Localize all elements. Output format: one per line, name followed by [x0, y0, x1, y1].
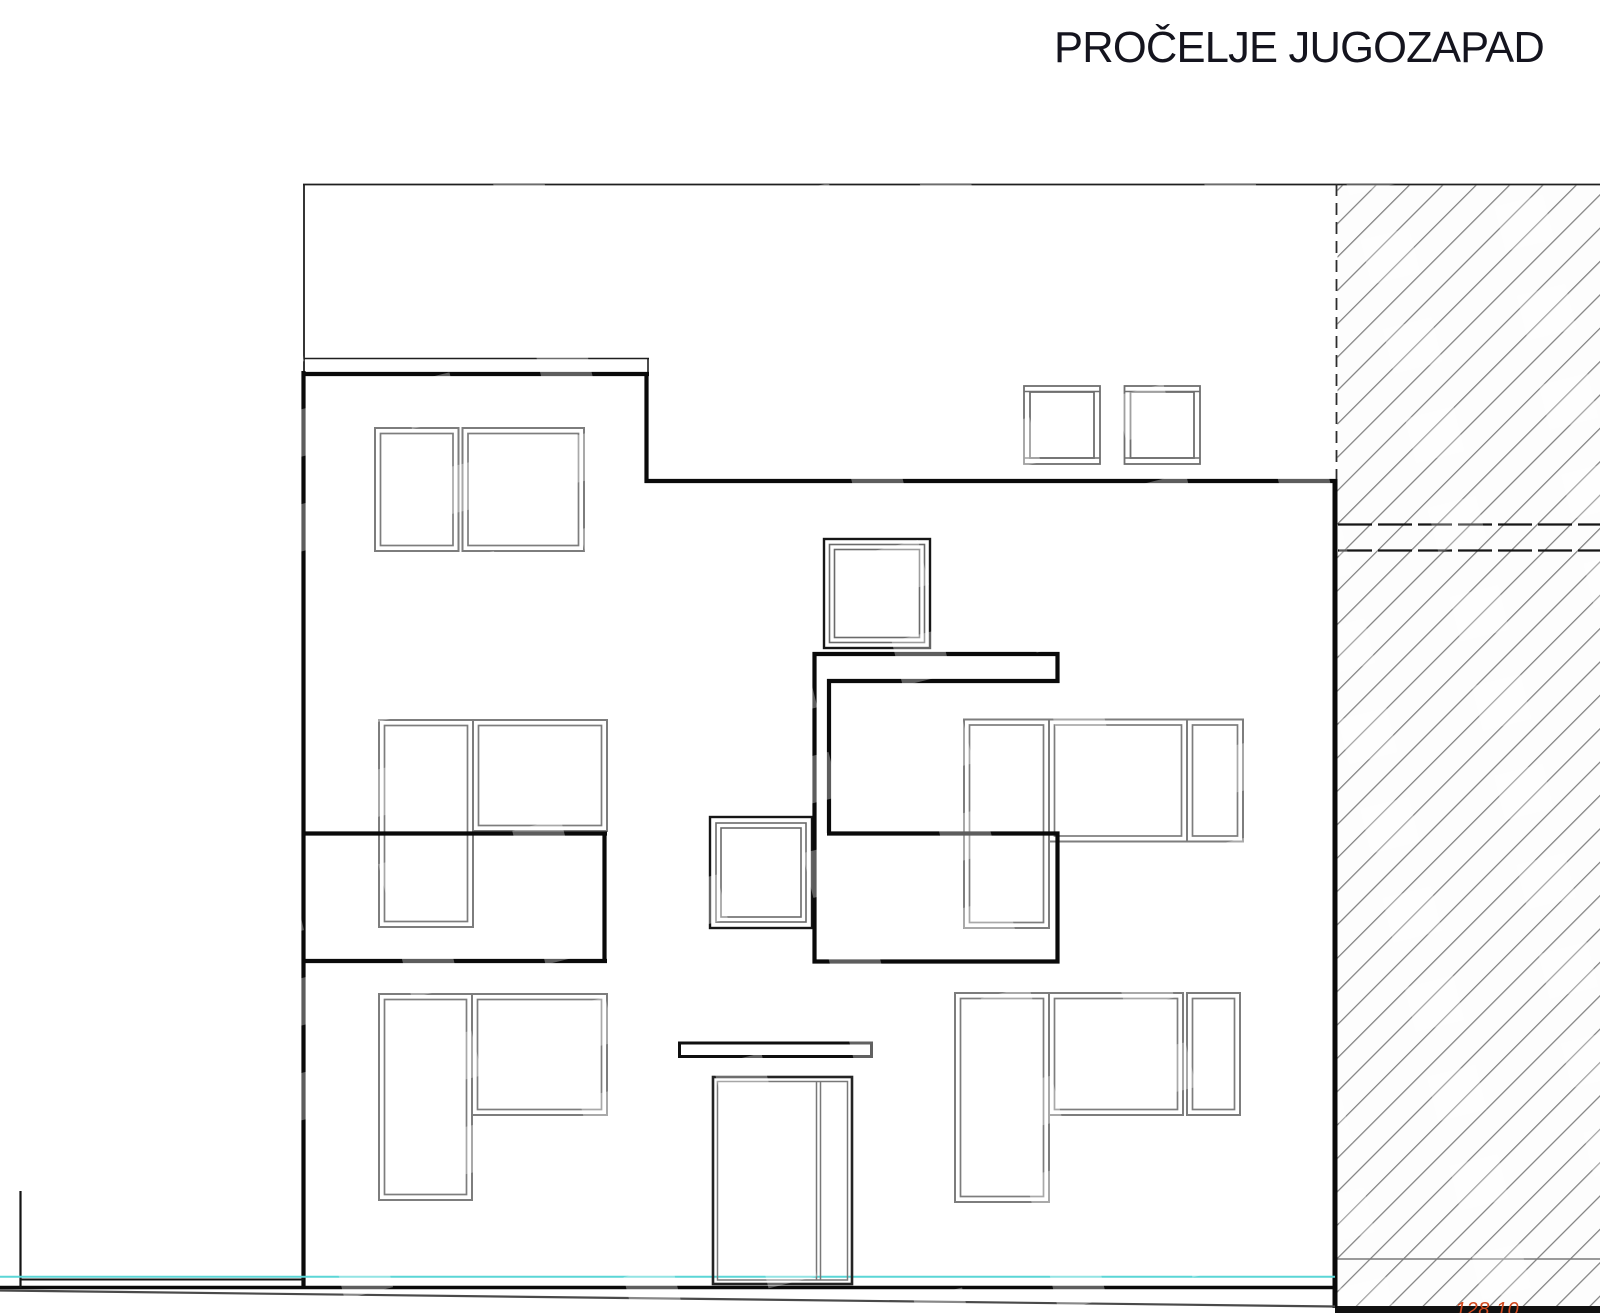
svg-text:128.10: 128.10: [1455, 1299, 1519, 1313]
svg-text:PROČELJE JUGOZAPAD: PROČELJE JUGOZAPAD: [1054, 22, 1544, 72]
